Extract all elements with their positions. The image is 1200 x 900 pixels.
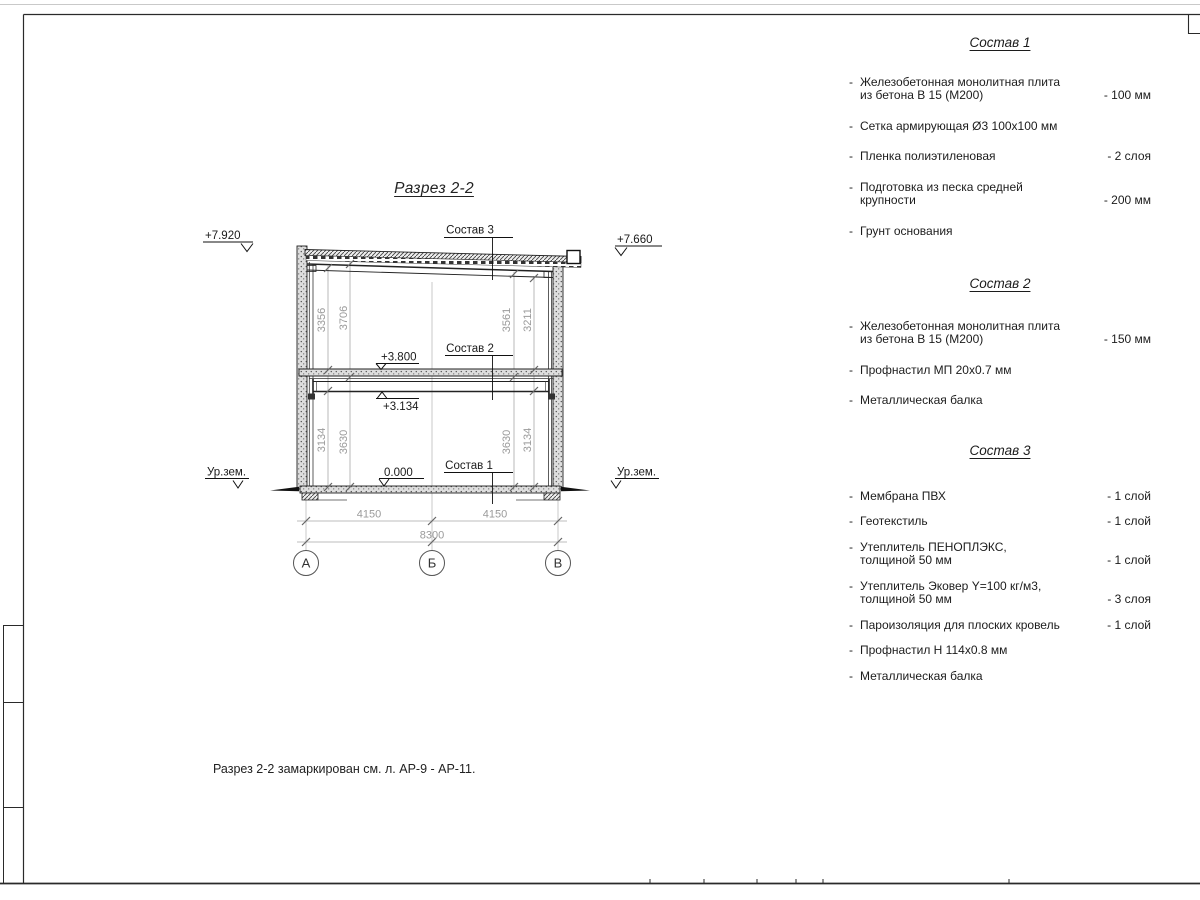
spec-item: - Утеплитель Эковер Y=100 кг/м3, толщино… [849,580,1151,607]
dim-span2: 4150 [483,509,507,521]
elevation-beam: +3.134 [383,401,419,413]
list-marker: - [849,670,860,684]
spec-item: - Подготовка из песка средней крупности … [849,181,1151,208]
spec-item-qty: - 1 слой [1086,619,1151,633]
frame-corner-box [1189,15,1200,34]
ground-level-label-left: Ур.зем. [207,467,246,479]
dim-v-3706: 3706 [338,306,350,330]
dim-v-3356: 3356 [316,308,328,332]
spec-title: Состав 2 [849,277,1151,291]
spec-item-qty: - 2 слоя [1086,150,1151,164]
list-marker: - [849,541,860,555]
spec-item: - Железобетонная монолитная плита из бет… [849,320,1151,347]
spec-item: - Мембрана ПВХ - 1 слой [849,490,1151,504]
list-marker: - [849,225,860,239]
dim-v-3211: 3211 [522,308,534,332]
spec-item-qty: - 200 мм [1086,194,1151,208]
spec-item-text: Геотекстиль [860,515,1086,529]
beam-pad-right [548,394,555,400]
spec-item-qty: - 1 слой [1086,490,1151,504]
dim-span1: 4150 [357,509,381,521]
foundation-left [302,493,318,500]
ground-line-right [561,487,590,491]
drawing-sheet: +7.920 +7.660 Состав 3 +3.800 Состав 2 +… [0,0,1200,900]
roof-edge-cap [567,251,580,264]
spec-item-text: Профнастил МП 20x0.7 мм [860,364,1086,378]
spec-item-text: Утеплитель Эковер Y=100 кг/м3, толщиной … [860,580,1086,607]
foundation-right [544,493,560,500]
spec-item-qty: - 150 мм [1086,333,1151,347]
spec-title: Состав 1 [849,36,1151,50]
spec-item: - Пароизоляция для плоских кровель - 1 с… [849,619,1151,633]
dim-total: 8300 [420,530,444,542]
list-marker: - [849,394,860,408]
drawing-caption: Разрез 2-2 замаркирован см. л. АР-9 - АР… [213,762,475,776]
roof-assembly [305,250,581,278]
list-marker: - [849,150,860,164]
dim-v-3630-left: 3630 [338,430,350,454]
spec-item: - Металлическая балка [849,670,1151,684]
axis-label-a: А [302,556,311,571]
spec-item-text: Пленка полиэтиленовая [860,150,1086,164]
ground-line-left [270,487,299,491]
spec-item-text: Мембрана ПВХ [860,490,1086,504]
list-marker: - [849,580,860,594]
spec-item-text: Профнастил Н 114x0.8 мм [860,644,1086,658]
spec-item-text: Металлическая балка [860,394,1086,408]
intermediate-slab [299,369,562,400]
spec-item: - Железобетонная монолитная плита из бет… [849,76,1151,103]
spec-item-text: Подготовка из песка средней крупности [860,181,1086,208]
spec-item: - Профнастил МП 20x0.7 мм [849,364,1151,378]
list-marker: - [849,515,860,529]
dim-v-3134-left: 3134 [316,428,328,452]
floor-slab [300,486,560,493]
dim-v-3630-right: 3630 [501,430,513,454]
leader-label-sostav3: Состав 3 [446,225,494,237]
list-marker: - [849,364,860,378]
beam-pad-left [308,394,315,400]
floor2-slab [299,369,562,376]
spec-item: - Сетка армирующая Ø3 100x100 мм [849,120,1151,134]
list-marker: - [849,120,860,134]
list-marker: - [849,644,860,658]
spec-item-text: Металлическая балка [860,670,1086,684]
axis-label-b: Б [428,556,437,571]
spec-title: Состав 3 [849,444,1151,458]
elevation-zero: 0.000 [384,467,413,479]
spec-section-sostav-2: Состав 2 - Железобетонная монолитная пли… [849,277,1151,425]
spec-section-sostav-1: Состав 1 - Железобетонная монолитная пли… [849,36,1151,255]
elevation-floor2: +3.800 [381,352,417,364]
leader-label-sostav2: Состав 2 [446,343,494,355]
spec-item-text: Железобетонная монолитная плита из бетон… [860,76,1086,103]
elevation-roof-left: +7.920 [205,230,241,242]
spec-item: - Профнастил Н 114x0.8 мм [849,644,1151,658]
spec-item-qty: - 3 слоя [1086,593,1151,607]
elevation-marks [203,242,662,488]
dim-v-3134-right: 3134 [522,428,534,452]
spec-item: - Металлическая балка [849,394,1151,408]
spec-item-qty: - 1 слой [1086,515,1151,529]
spec-item-text: Пароизоляция для плоских кровель [860,619,1086,633]
spec-section-sostav-3: Состав 3 - Мембрана ПВХ - 1 слой - Геоте… [849,444,1151,695]
section-title: Разрез 2-2 [394,180,474,198]
spec-item-text: Грунт основания [860,225,1086,239]
left-wall [297,246,307,489]
list-marker: - [849,320,860,334]
ground-floor [270,486,590,500]
spec-item-qty: - 100 мм [1086,89,1151,103]
left-margin-boxes [4,625,24,884]
dim-v-3561: 3561 [501,308,513,332]
list-marker: - [849,181,860,195]
spec-item: - Геотекстиль - 1 слой [849,515,1151,529]
ground-level-label-right: Ур.зем. [617,467,656,479]
spec-item-text: Сетка армирующая Ø3 100x100 мм [860,120,1086,134]
spec-item-qty: - 1 слой [1086,554,1151,568]
spec-item-text: Железобетонная монолитная плита из бетон… [860,320,1086,347]
list-marker: - [849,619,860,633]
axis-label-v: В [554,556,563,571]
list-marker: - [849,490,860,504]
spec-item: - Пленка полиэтиленовая - 2 слоя [849,150,1151,164]
elevation-roof-right: +7.660 [617,234,653,246]
leader-label-sostav1: Состав 1 [445,460,493,472]
spec-item-text: Утеплитель ПЕНОПЛЭКС, толщиной 50 мм [860,541,1086,568]
spec-item: - Утеплитель ПЕНОПЛЭКС, толщиной 50 мм -… [849,541,1151,568]
list-marker: - [849,76,860,90]
spec-item: - Грунт основания [849,225,1151,239]
